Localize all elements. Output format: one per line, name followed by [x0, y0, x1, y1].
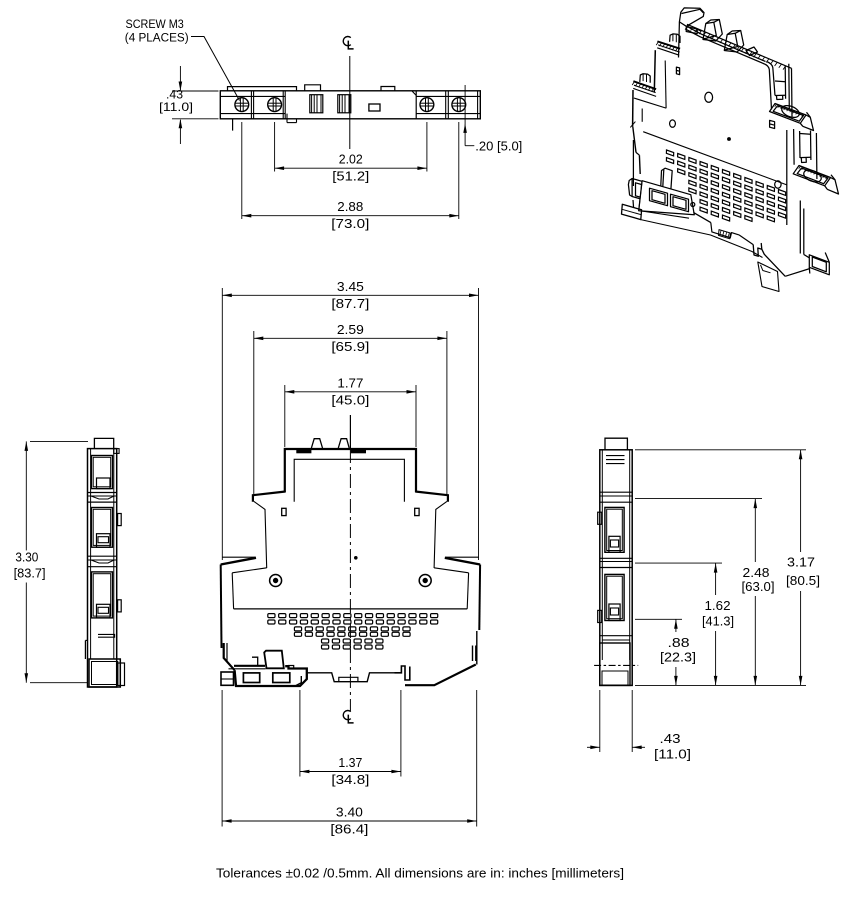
- svg-text:[63.0]: [63.0]: [742, 579, 775, 594]
- svg-text:1.77: 1.77: [337, 375, 363, 390]
- svg-text:.88: .88: [668, 635, 690, 650]
- svg-text:[86.4]: [86.4]: [330, 822, 368, 837]
- svg-text:[11.0]: [11.0]: [654, 747, 691, 762]
- svg-text:[22.3]: [22.3]: [660, 650, 696, 665]
- svg-text:[51.2]: [51.2]: [332, 169, 369, 184]
- svg-text:[11.0]: [11.0]: [159, 100, 193, 114]
- svg-text:2.02: 2.02: [339, 152, 363, 167]
- svg-text:[73.0]: [73.0]: [331, 216, 369, 231]
- svg-text:SCREW M3: SCREW M3: [126, 19, 184, 31]
- svg-text:[87.7]: [87.7]: [331, 296, 369, 311]
- svg-text:[34.8]: [34.8]: [331, 772, 369, 787]
- svg-text:3.17: 3.17: [787, 555, 815, 570]
- svg-text:3.40: 3.40: [336, 805, 363, 820]
- svg-text:3.30: 3.30: [15, 550, 38, 565]
- svg-text:1.62: 1.62: [705, 598, 731, 613]
- svg-text:Tolerances ±0.02 /0.5mm. All d: Tolerances ±0.02 /0.5mm. All dimensions …: [216, 866, 624, 881]
- svg-text:2.48: 2.48: [743, 565, 770, 580]
- svg-text:[80.5]: [80.5]: [786, 573, 820, 588]
- svg-text:(4 PLACES): (4 PLACES): [125, 32, 189, 44]
- svg-text:2.59: 2.59: [337, 322, 364, 337]
- svg-text:.20 [5.0]: .20 [5.0]: [475, 139, 522, 154]
- svg-text:[41.3]: [41.3]: [702, 614, 734, 629]
- svg-text:.43: .43: [660, 731, 681, 746]
- svg-text:[45.0]: [45.0]: [331, 392, 369, 407]
- svg-text:[65.9]: [65.9]: [331, 339, 369, 354]
- svg-text:3.45: 3.45: [337, 279, 364, 294]
- svg-text:2.88: 2.88: [337, 199, 363, 214]
- svg-text:[83.7]: [83.7]: [14, 566, 46, 581]
- svg-text:1.37: 1.37: [338, 755, 362, 770]
